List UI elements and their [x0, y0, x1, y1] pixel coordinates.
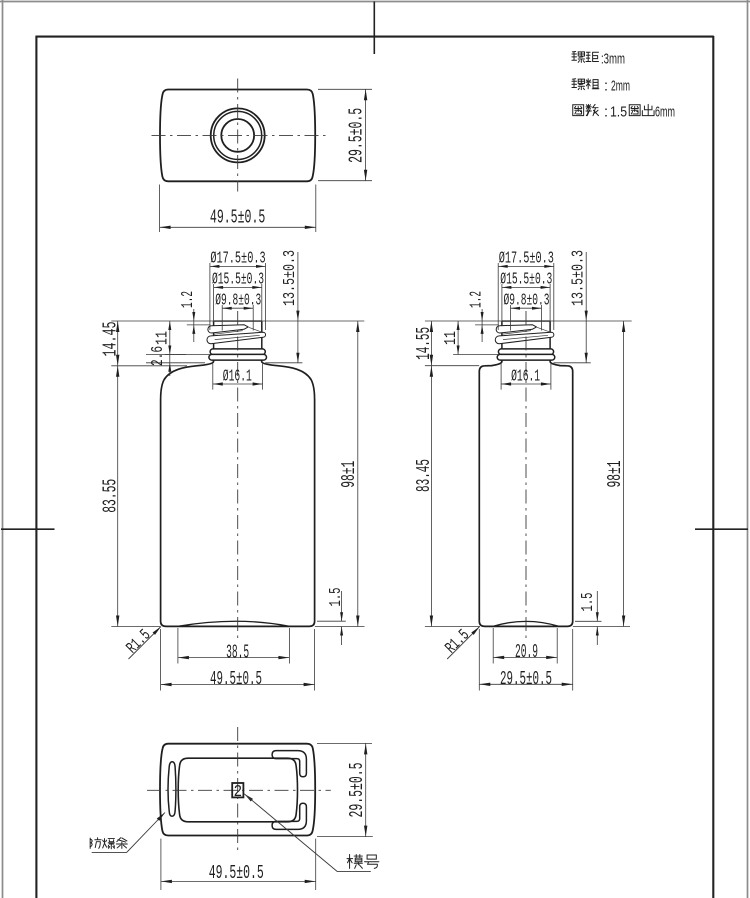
svg-text:13.5±0.3: 13.5±0.3 — [568, 250, 587, 306]
svg-text:Ø9.8±0.3: Ø9.8±0.3 — [215, 290, 261, 309]
svg-text::3mm: :3mm — [601, 50, 625, 67]
svg-text:29.5±0.5: 29.5±0.5 — [500, 668, 552, 690]
svg-text:13.5±0.3: 13.5±0.3 — [280, 250, 299, 306]
svg-text:14.55: 14.55 — [413, 327, 435, 360]
svg-text:98±1: 98±1 — [604, 461, 626, 488]
svg-text:49.5±0.5: 49.5±0.5 — [210, 207, 265, 229]
svg-text:1.5: 1.5 — [578, 593, 597, 612]
svg-text:2: 2 — [234, 783, 243, 802]
svg-text:1.5: 1.5 — [326, 588, 345, 607]
svg-text::: : — [600, 78, 608, 95]
svg-text:20.9: 20.9 — [515, 641, 538, 663]
svg-text:49.5±0.5: 49.5±0.5 — [209, 862, 264, 884]
svg-text:Ø15.5±0.3: Ø15.5±0.3 — [212, 270, 264, 289]
svg-text:29.5±0.5: 29.5±0.5 — [345, 108, 367, 163]
svg-text:29.5±0.5: 29.5±0.5 — [346, 763, 368, 818]
svg-text:6mm: 6mm — [655, 104, 675, 121]
svg-text:Ø16.1: Ø16.1 — [511, 366, 540, 385]
svg-text:Ø17.5±0.3: Ø17.5±0.3 — [499, 249, 554, 268]
svg-text:83.45: 83.45 — [413, 459, 435, 492]
svg-text:Ø17.5±0.3: Ø17.5±0.3 — [210, 249, 265, 268]
svg-text:1.2: 1.2 — [466, 291, 485, 308]
svg-text:1.5: 1.5 — [610, 104, 627, 121]
svg-text:11: 11 — [152, 331, 171, 345]
svg-text:49.5±0.5: 49.5±0.5 — [210, 668, 262, 690]
svg-text:Ø16.1: Ø16.1 — [223, 366, 252, 385]
svg-text::: : — [600, 104, 608, 121]
svg-text:98±1: 98±1 — [338, 461, 360, 488]
svg-text:14.45: 14.45 — [99, 322, 121, 357]
svg-text:83.55: 83.55 — [99, 479, 121, 513]
svg-text:2mm: 2mm — [611, 78, 630, 95]
svg-text:38.5: 38.5 — [226, 641, 249, 663]
svg-text:Ø15.5±0.3: Ø15.5±0.3 — [500, 270, 552, 289]
svg-text:2.6: 2.6 — [148, 346, 167, 366]
svg-text:Ø9.8±0.3: Ø9.8±0.3 — [504, 290, 550, 309]
svg-text:11: 11 — [441, 331, 460, 345]
svg-text:1.2: 1.2 — [178, 291, 197, 308]
